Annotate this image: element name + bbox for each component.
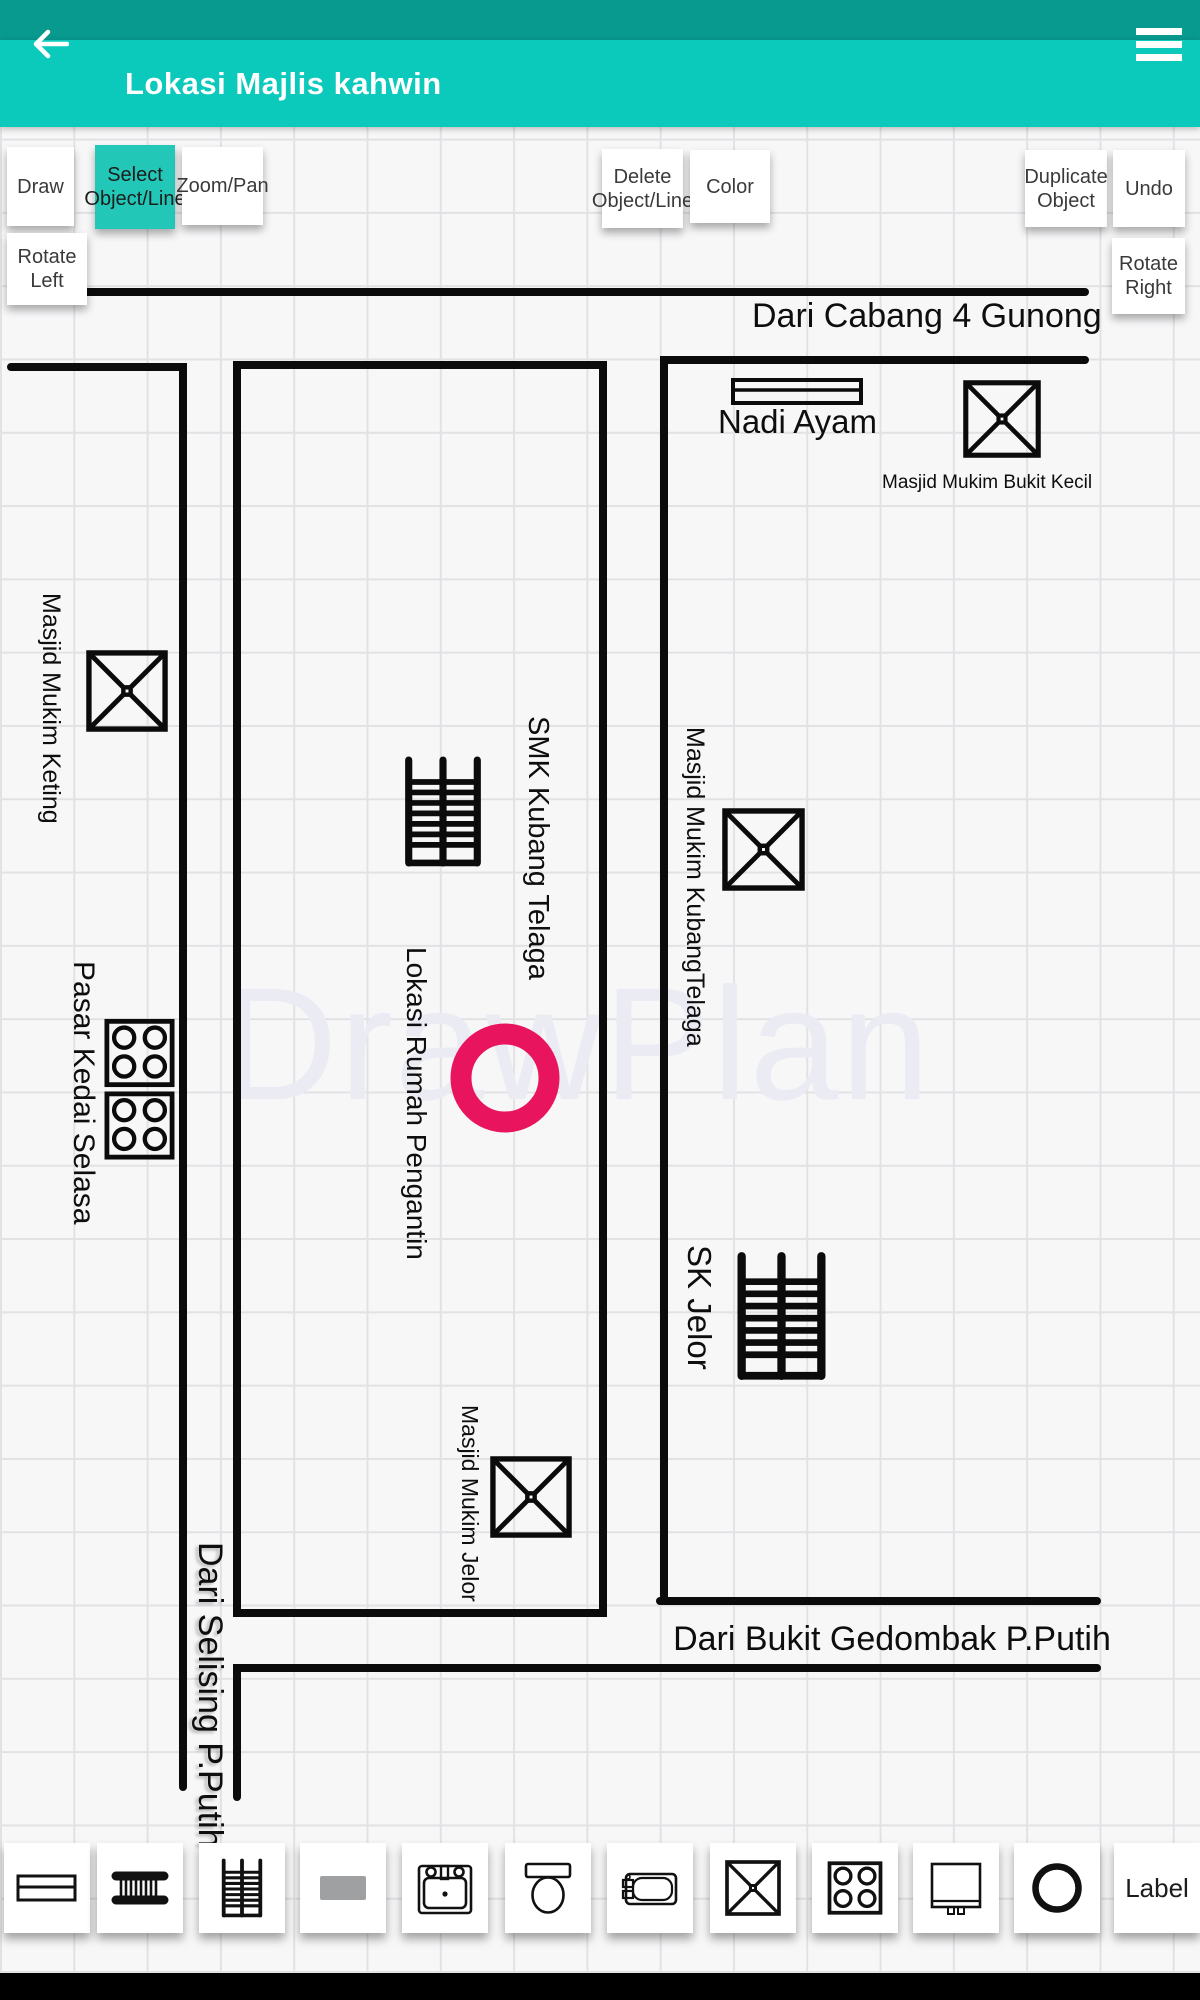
toilet-icon xyxy=(517,1857,579,1919)
masjid-symbol-kubang-telaga[interactable] xyxy=(725,811,802,888)
delete-object-line-button[interactable]: Delete Object/Line xyxy=(602,149,683,228)
bottom-system-bar xyxy=(0,1973,1200,2000)
ladder-icon xyxy=(109,1857,171,1919)
stove-symbol-pasar-1[interactable] xyxy=(107,1021,172,1084)
palette-item-ladder[interactable] xyxy=(97,1843,183,1933)
label-button[interactable]: Label xyxy=(1114,1843,1200,1933)
page-title: Lokasi Majlis kahwin xyxy=(125,66,442,102)
table-symbol-nadi-ayam[interactable] xyxy=(733,380,861,403)
label-masjid-jelor[interactable]: Masjid Mukim Jelor xyxy=(456,1405,483,1602)
palette-item-table[interactable] xyxy=(4,1843,90,1933)
label-road-bottom[interactable]: Dari Bukit Gedombak P.Putih xyxy=(672,1620,1112,1659)
duplicate-object-button[interactable]: Duplicate Object xyxy=(1025,150,1107,227)
palette-item-circle[interactable] xyxy=(1014,1843,1100,1933)
hamburger-icon xyxy=(1136,28,1182,35)
zoom-pan-button[interactable]: Zoom/Pan xyxy=(182,147,263,225)
label-road-left[interactable]: Dari Selising P.Putih xyxy=(190,1542,229,1848)
app-bar: Lokasi Majlis kahwin xyxy=(0,40,1200,127)
table-icon xyxy=(12,1857,82,1919)
road-bottom-line[interactable] xyxy=(237,1668,1097,1797)
palette-item-cabinet[interactable] xyxy=(913,1843,999,1933)
palette-item-sink[interactable] xyxy=(402,1843,488,1933)
rotate-left-button[interactable]: Rotate Left xyxy=(7,233,87,305)
label-masjid-kubang-telaga[interactable]: Masjid Mukim KubangTelaga xyxy=(680,727,709,1047)
label-road-top[interactable]: Dari Cabang 4 Gunong xyxy=(752,297,1097,336)
label-masjid-keting[interactable]: Masjid Mukim Keting xyxy=(36,593,65,824)
arrow-left-icon xyxy=(31,28,69,60)
stove-icon xyxy=(827,1861,883,1915)
label-sk-jelor[interactable]: SK Jelor xyxy=(680,1245,718,1370)
palette-item-staircase[interactable] xyxy=(199,1843,285,1933)
label-lokasi-rumah-pengantin[interactable]: Lokasi Rumah Pengantin xyxy=(400,947,432,1260)
palette-item-toilet[interactable] xyxy=(505,1843,591,1933)
masjid-symbol-keting[interactable] xyxy=(89,653,165,729)
label-pasar-kedai-selasa[interactable]: Pasar Kedai Selasa xyxy=(66,961,100,1225)
masjid-symbol-jelor[interactable] xyxy=(493,1459,569,1535)
palette-item-stove[interactable] xyxy=(812,1843,898,1933)
bathtub-icon xyxy=(619,1857,681,1919)
staircase-symbol-sk-jelor[interactable] xyxy=(742,1256,822,1376)
pink-circle-marker[interactable] xyxy=(461,1034,549,1122)
staircase-icon xyxy=(215,1858,269,1918)
rotate-right-button[interactable]: Rotate Right xyxy=(1112,238,1185,314)
cabinet-icon xyxy=(925,1857,987,1919)
stove-symbol-pasar-2[interactable] xyxy=(107,1094,172,1157)
staircase-symbol-smk[interactable] xyxy=(409,760,478,863)
right-block-outline[interactable] xyxy=(660,360,1097,1601)
masjid-icon xyxy=(725,1860,781,1916)
masjid-symbol-bukit-kecil[interactable] xyxy=(966,383,1038,455)
draw-button[interactable]: Draw xyxy=(7,147,74,226)
back-button[interactable] xyxy=(28,24,72,64)
menu-button[interactable] xyxy=(1136,22,1184,66)
rectangle-icon xyxy=(312,1857,374,1919)
sink-icon xyxy=(414,1857,476,1919)
color-button[interactable]: Color xyxy=(690,150,770,223)
circle-icon xyxy=(1026,1857,1088,1919)
undo-button[interactable]: Undo xyxy=(1113,150,1185,227)
palette-item-rectangle[interactable] xyxy=(300,1843,386,1933)
status-bar xyxy=(0,0,1200,40)
palette-item-bathtub[interactable] xyxy=(607,1843,693,1933)
label-smk-kubang-telaga[interactable]: SMK Kubang Telaga xyxy=(521,716,554,980)
select-object-line-button[interactable]: Select Object/Line xyxy=(95,145,175,229)
label-nadi-ayam[interactable]: Nadi Ayam xyxy=(700,403,895,441)
label-masjid-bukit-kecil[interactable]: Masjid Mukim Bukit Kecil xyxy=(882,472,1082,494)
palette-item-masjid[interactable] xyxy=(710,1843,796,1933)
